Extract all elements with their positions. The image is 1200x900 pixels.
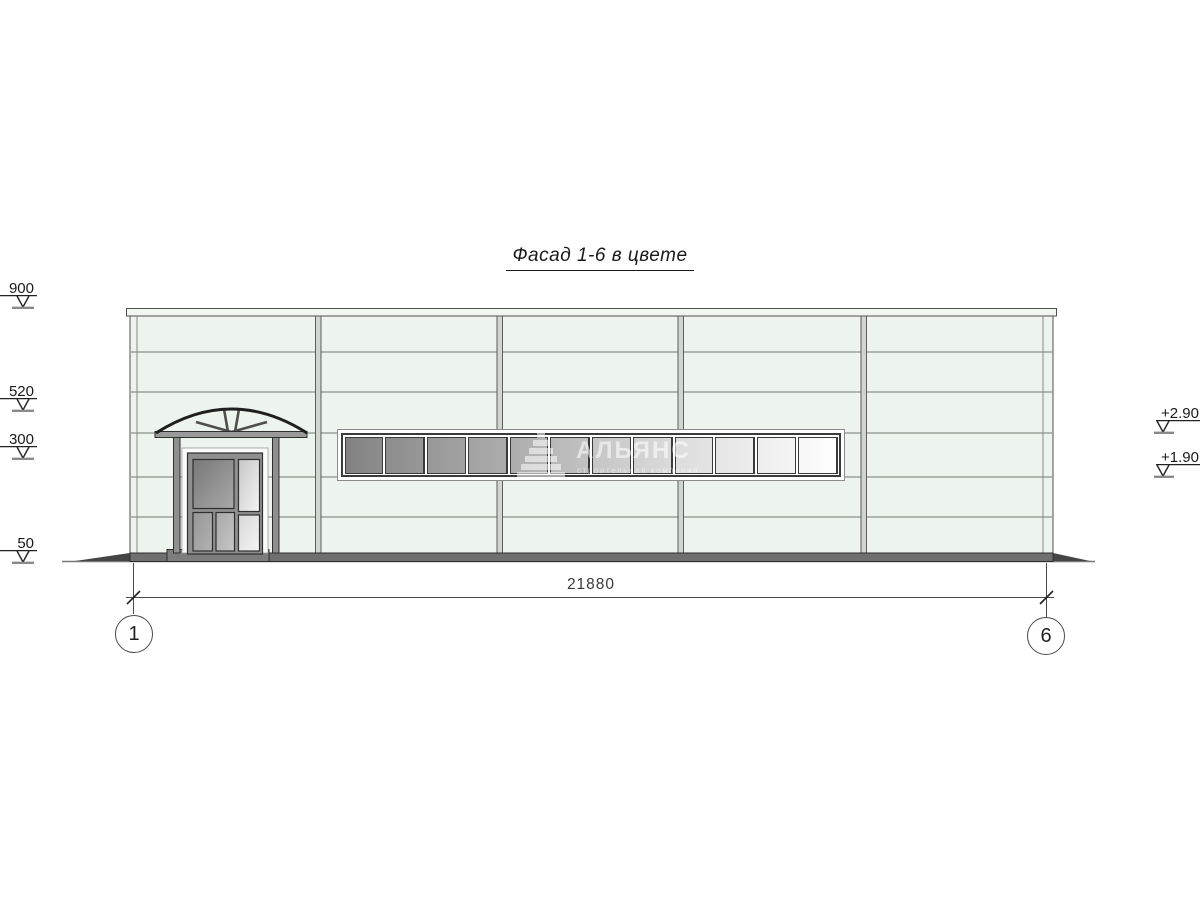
elevation-marker-left-3: 300	[0, 428, 40, 460]
window-pane	[675, 437, 714, 474]
elevation-marker-left-1: 900	[0, 277, 40, 309]
ribbon-window	[337, 429, 845, 481]
axis-bubble-6: 6	[1027, 617, 1065, 655]
window-pane	[592, 437, 631, 474]
canopy-beam	[155, 432, 307, 438]
title-row: Фасад 1-6 в цвете	[0, 245, 1200, 271]
window-pane	[345, 437, 384, 474]
elevation-mark-icon	[0, 446, 40, 460]
door-glass-pane	[239, 460, 260, 512]
elevation-marker-right-2: +1.90	[1153, 446, 1200, 478]
elevation-mark-icon	[0, 295, 40, 309]
column-joint	[316, 316, 322, 553]
drawing-title: Фасад 1-6 в цвете	[506, 245, 693, 271]
walkway-wedge-left	[75, 553, 130, 561]
door-glazing	[193, 460, 260, 552]
elevation-mark-icon	[0, 398, 40, 412]
window-pane	[427, 437, 466, 474]
elevation-mark-icon	[1153, 464, 1200, 478]
window-pane	[385, 437, 425, 474]
window-pane	[510, 437, 549, 474]
window-pane	[633, 437, 673, 474]
ribbon-window-frame	[341, 433, 841, 477]
axis-number: 6	[1040, 625, 1051, 648]
elevation-marker-left-4: 50	[0, 532, 40, 564]
window-pane	[468, 437, 508, 474]
axis-number: 1	[128, 623, 139, 646]
elevation-marker-left-2: 520	[0, 380, 40, 412]
elevation-mark-icon	[1153, 420, 1200, 434]
dimension-value: 21880	[0, 576, 1182, 594]
axis-bubble-1: 1	[115, 615, 153, 653]
column-joint	[861, 316, 867, 553]
parapet-coping	[127, 309, 1057, 317]
canopy-post-left	[174, 437, 181, 553]
walkway-wedge-right	[1053, 553, 1090, 561]
window-pane	[798, 437, 838, 474]
canopy-post-right	[273, 437, 280, 553]
window-pane	[715, 437, 755, 474]
window-pane	[550, 437, 590, 474]
door-glass-pane	[216, 513, 235, 552]
elevation-marker-right-1: +2.90	[1153, 402, 1200, 434]
door-glass-pane	[239, 515, 260, 551]
drawing-canvas: АЛЬЯНС строительная компания Фасад 1-6 в…	[0, 0, 1200, 900]
window-pane	[757, 437, 796, 474]
elevation-mark-icon	[0, 550, 40, 564]
door-glass-pane	[193, 460, 234, 509]
door-glass-pane	[193, 513, 213, 552]
